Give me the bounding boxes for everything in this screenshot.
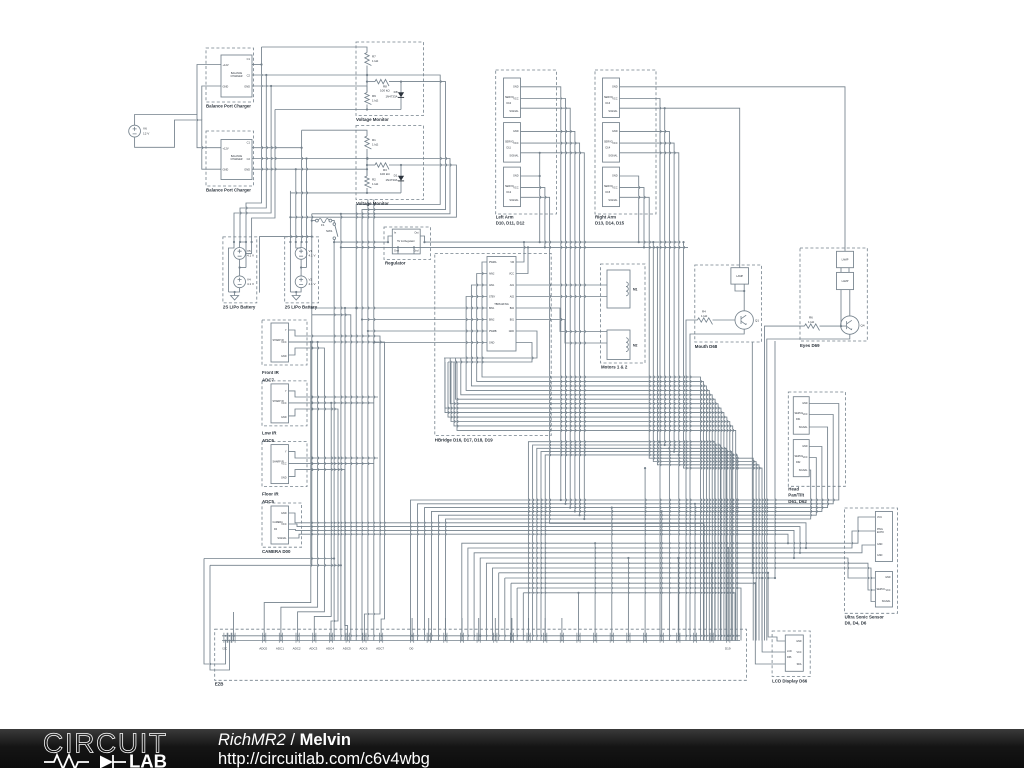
svg-text:D0: D0 <box>410 647 414 651</box>
svg-text:GND: GND <box>612 130 618 133</box>
svg-text:AIN2: AIN2 <box>489 273 495 276</box>
svg-text:V1: V1 <box>309 249 313 253</box>
svg-text:D10: D10 <box>507 102 512 105</box>
svg-text:D13, D14, D15: D13, D14, D15 <box>595 221 625 226</box>
svg-text:Out: Out <box>414 231 418 235</box>
svg-text:Balance Port Charger: Balance Port Charger <box>206 188 251 193</box>
svg-text:GND: GND <box>489 342 495 345</box>
svg-text:SIGNAL: SIGNAL <box>509 110 519 113</box>
svg-text:VCC: VCC <box>877 516 882 519</box>
svg-text:Head: Head <box>788 487 799 492</box>
svg-text:GND: GND <box>281 416 287 419</box>
svg-text:D0, D4, D6: D0, D4, D6 <box>845 621 867 626</box>
svg-text:1N4733A: 1N4733A <box>385 178 397 182</box>
svg-text:1 kΩ: 1 kΩ <box>372 59 379 63</box>
svg-text:R2: R2 <box>372 178 376 182</box>
svg-text:A02: A02 <box>510 296 515 299</box>
svg-text:F1: F1 <box>321 223 325 227</box>
svg-text:GND: GND <box>802 445 808 448</box>
svg-text:1 kΩ: 1 kΩ <box>372 143 379 147</box>
svg-text:1 kΩ: 1 kΩ <box>701 314 708 318</box>
svg-text:R1: R1 <box>372 138 376 142</box>
svg-text:VCC: VCC <box>612 187 617 190</box>
svg-text:VCC: VCC <box>802 456 807 459</box>
svg-text:SIGNAL: SIGNAL <box>509 155 519 158</box>
svg-text:ADC2: ADC2 <box>293 647 301 651</box>
svg-text:R7: R7 <box>372 55 376 59</box>
svg-text:1 kΩ: 1 kΩ <box>372 182 379 186</box>
svg-text:VCC: VCC <box>509 273 514 276</box>
svg-text:Ultra Sonic Sensor: Ultra Sonic Sensor <box>845 615 885 620</box>
svg-text:LAB: LAB <box>129 751 167 768</box>
svg-text:100 kΩ: 100 kΩ <box>380 172 390 176</box>
svg-text:ADC5: ADC5 <box>343 647 351 651</box>
svg-text:LCD: LCD <box>787 650 792 653</box>
svg-text:M2: M2 <box>633 343 638 347</box>
svg-text:LAMP: LAMP <box>842 259 849 262</box>
svg-text:Y: Y <box>285 329 287 332</box>
svg-text:D12: D12 <box>507 191 512 194</box>
svg-text:4.1 V: 4.1 V <box>309 282 316 286</box>
svg-text:VCC: VCC <box>513 142 518 145</box>
svg-text:+12V: +12V <box>223 63 229 67</box>
svg-text:Floor IR: Floor IR <box>262 492 279 497</box>
svg-text:2S LiPo Battery: 2S LiPo Battery <box>285 305 318 310</box>
svg-text:D61, D62: D61, D62 <box>788 499 807 504</box>
svg-text:GND: GND <box>244 85 250 89</box>
svg-text:C1: C1 <box>247 57 251 61</box>
svg-text:VCC: VCC <box>281 463 286 466</box>
svg-text:M1: M1 <box>633 288 638 292</box>
svg-text:VCC: VCC <box>513 187 518 190</box>
svg-text:D14: D14 <box>606 147 611 150</box>
svg-text:PWMA: PWMA <box>489 261 497 264</box>
svg-text:Low IR: Low IR <box>262 431 277 436</box>
svg-text:A01: A01 <box>510 284 515 287</box>
svg-text:VCC: VCC <box>612 98 617 101</box>
svg-text:D19: D19 <box>725 647 731 651</box>
svg-text:SIGNAL: SIGNAL <box>882 600 891 603</box>
svg-text:D13: D13 <box>606 102 611 105</box>
svg-text:ADC6: ADC6 <box>359 647 367 651</box>
svg-text:D0: D0 <box>274 528 278 531</box>
svg-text:5V 1A Regulator: 5V 1A Regulator <box>397 240 415 243</box>
svg-text:GND: GND <box>513 86 519 89</box>
svg-text:GND: GND <box>796 640 802 643</box>
svg-text:VCC: VCC <box>281 341 286 344</box>
svg-text:V6: V6 <box>143 127 147 131</box>
svg-text:TB6612FNG: TB6612FNG <box>494 302 509 306</box>
svg-text:ADC5: ADC5 <box>262 499 275 504</box>
svg-text:4.1 V: 4.1 V <box>309 254 316 258</box>
svg-text:Gnd: Gnd <box>394 249 399 253</box>
svg-text:D11: D11 <box>507 147 512 150</box>
svg-text:ADC0: ADC0 <box>259 647 267 651</box>
svg-text:SW1: SW1 <box>326 229 333 233</box>
svg-text:GND: GND <box>223 85 229 89</box>
svg-text:BIN2: BIN2 <box>489 319 495 322</box>
svg-text:Pan/Tilt: Pan/Tilt <box>788 493 804 498</box>
svg-text:Q4: Q4 <box>861 324 865 328</box>
svg-text:Motors 1 & 2: Motors 1 & 2 <box>601 365 628 370</box>
svg-text:D62: D62 <box>796 461 801 464</box>
svg-text:GND: GND <box>877 543 883 546</box>
svg-text:V5: V5 <box>247 249 251 253</box>
svg-text:Voltage Monitor: Voltage Monitor <box>356 117 389 122</box>
svg-text:GND: GND <box>513 175 519 178</box>
svg-text:ADC6: ADC6 <box>262 438 275 443</box>
svg-text:GND: GND <box>802 402 808 405</box>
svg-text:Eyes D69: Eyes D69 <box>800 343 820 348</box>
svg-text:SIGNAL: SIGNAL <box>509 199 519 202</box>
svg-text:BIN1: BIN1 <box>489 307 495 310</box>
svg-text:HBridge D16, D17, D18, D19: HBridge D16, D17, D18, D19 <box>435 438 493 443</box>
svg-text:ADC1: ADC1 <box>276 647 284 651</box>
svg-text:2S LiPo Battery: 2S LiPo Battery <box>223 305 256 310</box>
svg-text:1 kΩ: 1 kΩ <box>372 99 379 103</box>
svg-text:Regulator: Regulator <box>385 261 406 266</box>
svg-text:LCD Display D66: LCD Display D66 <box>772 679 808 684</box>
svg-text:VCC: VCC <box>612 142 617 145</box>
svg-text:SIGNAL: SIGNAL <box>608 155 618 158</box>
svg-text:LAMP: LAMP <box>842 280 849 283</box>
svg-text:GND: GND <box>612 86 618 89</box>
svg-text:4.1 V: 4.1 V <box>247 282 254 286</box>
svg-text:V4: V4 <box>247 278 251 282</box>
svg-text:+12V: +12V <box>223 147 229 151</box>
svg-text:C2: C2 <box>247 157 251 161</box>
svg-text:SIGNAL: SIGNAL <box>608 199 618 202</box>
svg-text:ECHO: ECHO <box>877 531 884 534</box>
svg-text:Mouth D68: Mouth D68 <box>695 344 718 349</box>
svg-text:ADC7: ADC7 <box>376 647 384 651</box>
svg-text:100 kΩ: 100 kΩ <box>380 89 390 93</box>
svg-text:SIGNAL: SIGNAL <box>277 537 287 540</box>
svg-text:ADC4: ADC4 <box>326 647 334 651</box>
svg-text:D10, D11, D12: D10, D11, D12 <box>496 221 525 226</box>
svg-text:1N4733A: 1N4733A <box>385 94 397 98</box>
svg-text:I2C: I2C <box>223 647 229 651</box>
svg-text:SERVO: SERVO <box>877 588 885 591</box>
svg-text:VCC: VCC <box>796 651 801 654</box>
svg-text:R9: R9 <box>372 94 376 98</box>
svg-text:PWMB: PWMB <box>489 330 497 333</box>
svg-text:GND: GND <box>612 175 618 178</box>
svg-text:GND: GND <box>244 168 250 172</box>
svg-text:SIGNAL: SIGNAL <box>799 469 808 472</box>
svg-text:Q1: Q1 <box>755 319 759 323</box>
svg-text:VM: VM <box>510 261 514 264</box>
svg-text:D61: D61 <box>796 418 801 421</box>
svg-text:GND: GND <box>885 576 891 579</box>
svg-text:VCC: VCC <box>802 413 807 416</box>
svg-text:1 kΩ: 1 kΩ <box>808 320 815 324</box>
svg-text:VCC: VCC <box>513 98 518 101</box>
svg-text:In: In <box>394 231 397 235</box>
svg-text:Left Arm: Left Arm <box>496 215 514 220</box>
svg-text:4.1 V: 4.1 V <box>247 254 254 258</box>
svg-text:Gnd: Gnd <box>414 249 419 253</box>
svg-text:C2: C2 <box>247 74 251 78</box>
svg-text:GND: GND <box>223 168 229 172</box>
svg-text:CAMERA D00: CAMERA D00 <box>262 549 291 554</box>
svg-text:Balance Port Charger: Balance Port Charger <box>206 104 251 109</box>
svg-text:Y: Y <box>285 451 287 454</box>
svg-text:CHARGER: CHARGER <box>231 75 243 78</box>
svg-text:VCC: VCC <box>281 523 286 526</box>
svg-text:LAMP: LAMP <box>736 275 743 278</box>
svg-text:V2: V2 <box>309 278 313 282</box>
svg-text:C1: C1 <box>247 141 251 145</box>
svg-text:AIN1: AIN1 <box>489 284 495 287</box>
svg-text:SDA: SDA <box>797 663 802 666</box>
svg-text:GND: GND <box>281 512 287 515</box>
svg-text:ADC3: ADC3 <box>309 647 317 651</box>
svg-text:12 V: 12 V <box>143 132 150 136</box>
svg-text:GND: GND <box>513 130 519 133</box>
svg-text:ADC7: ADC7 <box>262 378 275 383</box>
svg-text:SIGNAL: SIGNAL <box>608 110 618 113</box>
svg-text:VCC: VCC <box>885 589 890 592</box>
svg-text:VCC: VCC <box>281 402 286 405</box>
svg-text:Front IR: Front IR <box>262 370 280 375</box>
svg-text:Voltage Monitor: Voltage Monitor <box>356 201 389 206</box>
svg-text:D15: D15 <box>606 191 611 194</box>
svg-text:SIGNAL: SIGNAL <box>799 426 808 429</box>
svg-text:Y: Y <box>285 390 287 393</box>
svg-text:B01: B01 <box>510 319 515 322</box>
svg-text:D66: D66 <box>787 656 792 659</box>
svg-text:CHARGER: CHARGER <box>231 158 243 161</box>
svg-text:STBY: STBY <box>489 296 496 299</box>
svg-text:GND: GND <box>281 355 287 358</box>
svg-text:EZB: EZB <box>215 682 224 687</box>
svg-text:Right Arm: Right Arm <box>595 215 616 220</box>
svg-text:B02: B02 <box>510 307 515 310</box>
svg-text:GND: GND <box>877 554 883 557</box>
svg-text:GND: GND <box>509 330 515 333</box>
svg-text:GND: GND <box>281 477 287 480</box>
